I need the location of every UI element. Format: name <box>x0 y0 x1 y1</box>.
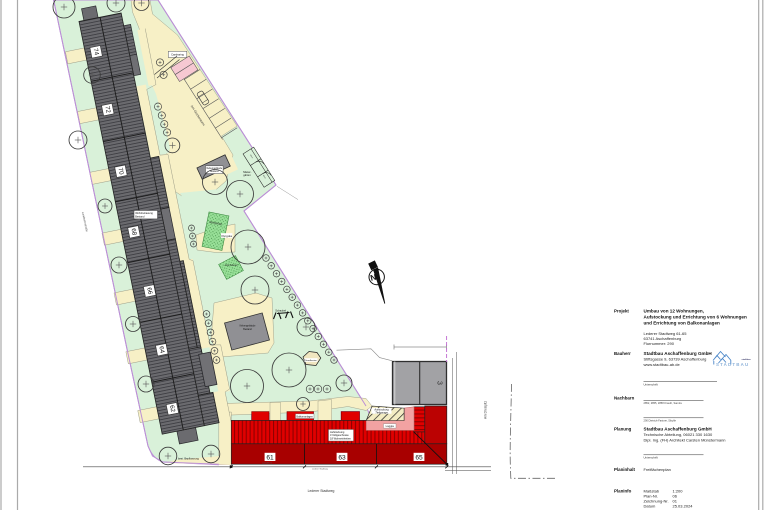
svg-text:Aufstockung: Aufstockung <box>330 430 345 434</box>
svg-text:Technische Abteilung, 06021 33: Technische Abteilung, 06021 330 1630 <box>644 432 713 437</box>
svg-text:61: 61 <box>266 455 274 462</box>
svg-text:2852, 2855, 2858 Krauth, Sam: 2852, 2855, 2858 Krauth, Samira <box>644 401 683 405</box>
svg-text:Tiefgarage: Tiefgarage <box>375 410 388 414</box>
svg-text:63: 63 <box>338 455 346 462</box>
svg-text:Flurnummer: 290: Flurnummer: 290 <box>644 341 675 346</box>
svg-text:3 Vollgeschosse: 3 Vollgeschosse <box>330 433 349 437</box>
svg-text:Lederer Stadtweg: Lederer Stadtweg <box>308 489 335 493</box>
svg-text:best. Bepflanzung: best. Bepflanzung <box>178 457 199 461</box>
svg-text:Datum: Datum <box>644 504 656 509</box>
svg-text:Balkonanlagen: Balkonanlagen <box>296 416 313 419</box>
svg-text:x=3548575: x=3548575 <box>262 463 273 465</box>
svg-text:Dipl. Ing. (FH) Architekt Cars: Dipl. Ing. (FH) Architekt Carsten Münste… <box>644 438 726 443</box>
svg-text:Am Dreispitz: Am Dreispitz <box>484 401 488 419</box>
svg-text:Loggia: Loggia <box>386 424 395 428</box>
svg-text:Bestand: Bestand <box>243 328 252 331</box>
svg-text:Freiflächenplan: Freiflächenplan <box>644 467 671 472</box>
svg-text:STADTBAU: STADTBAU <box>716 362 749 367</box>
svg-text:Pergola: Pergola <box>222 234 233 238</box>
svg-text:Aufstockung und Errichtung von: Aufstockung und Errichtung von 6 Wohnung… <box>644 315 747 320</box>
svg-text:gärten: gärten <box>243 173 251 177</box>
svg-text:Bauherr: Bauherr <box>614 351 631 356</box>
svg-text:Stiftsgasse 9, 63739 Aschaffen: Stiftsgasse 9, 63739 Aschaffenburg <box>644 357 707 362</box>
svg-text:Unterschrift: Unterschrift <box>644 382 659 386</box>
svg-text:Stadtbau Aschaffenburg GmbH: Stadtbau Aschaffenburg GmbH <box>644 427 713 432</box>
svg-text:Schaukel: Schaukel <box>275 309 286 313</box>
svg-text:Stadtbau Aschaffenburg GmbH: Stadtbau Aschaffenburg GmbH <box>644 351 713 356</box>
svg-text:Umbau von 12 Wohnungen,: Umbau von 12 Wohnungen, <box>644 309 704 314</box>
svg-text:Sandkasten: Sandkasten <box>305 359 317 362</box>
svg-text:Planinhalt: Planinhalt <box>614 467 636 472</box>
svg-text:Bestand: Bestand <box>135 215 145 218</box>
svg-text:Hochbeet: Hochbeet <box>225 263 238 267</box>
svg-text:und Errichtung von Balkonanlag: und Errichtung von Balkonanlagen <box>644 321 721 326</box>
svg-text:www.stadtbau-ab.de: www.stadtbau-ab.de <box>644 362 681 367</box>
svg-text:Nachbarn: Nachbarn <box>614 396 635 401</box>
svg-text:18 Wohneinheiten: 18 Wohneinheiten <box>330 437 351 441</box>
svg-text:Carsharing: Carsharing <box>171 53 184 57</box>
svg-text:Planinfo: Planinfo <box>614 488 632 493</box>
svg-text:Lederer Stadtweg: Lederer Stadtweg <box>312 468 328 471</box>
svg-text:290 Dietrich-Fastner, Sibyll: 290 Dietrich-Fastner, Sibylle <box>644 419 677 423</box>
svg-text:Projekt: Projekt <box>614 309 629 314</box>
svg-text:25.03.2024: 25.03.2024 <box>673 504 694 509</box>
svg-text:Unterschrift: Unterschrift <box>644 456 659 460</box>
svg-text:Planung: Planung <box>614 427 632 432</box>
svg-text:3: 3 <box>436 381 443 385</box>
svg-text:65: 65 <box>415 455 423 462</box>
svg-text:stadtbau: stadtbau <box>742 358 752 361</box>
svg-text:Nebengebäude: Nebengebäude <box>240 326 256 328</box>
